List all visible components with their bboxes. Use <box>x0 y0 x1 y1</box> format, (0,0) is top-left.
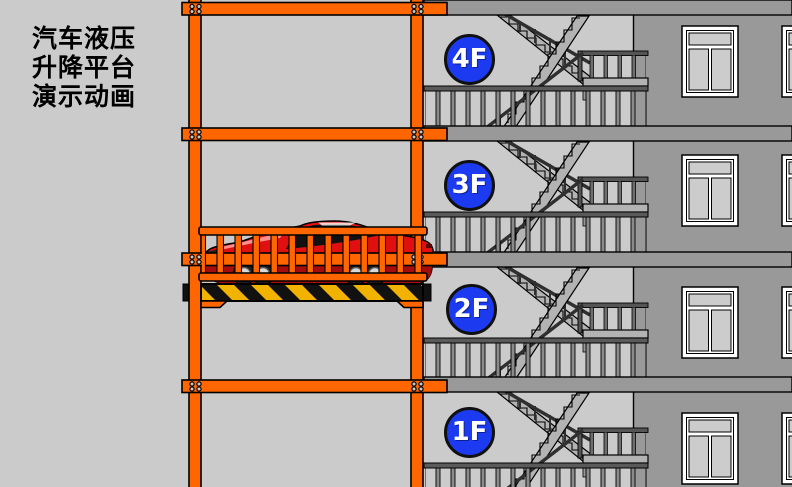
floor-badge-label: 3F <box>452 170 488 200</box>
platform-end-cap-right <box>423 284 431 301</box>
title-line-2: 升降平台 <box>32 53 136 82</box>
floor-badge-3f: 3F <box>444 160 495 211</box>
floor-badge-2f: 2F <box>446 284 497 335</box>
floor-slab <box>424 377 792 392</box>
hazard-stripe-panel <box>201 284 423 301</box>
platform-railing <box>199 227 427 281</box>
floor-badge-4f: 4F <box>444 34 495 85</box>
crossbeam-bottom <box>182 380 447 393</box>
crossbeam-2 <box>182 128 447 141</box>
platform-railing-bottom <box>199 273 427 281</box>
platform-railing-top <box>199 227 427 235</box>
platform-bracket-right <box>397 301 423 308</box>
floor-slab <box>424 0 792 15</box>
title-line-3: 演示动画 <box>32 82 136 111</box>
animation-stage: 汽车液压 升降平台 演示动画 4F 3F 2F 1F <box>0 0 792 487</box>
floor-badge-1f: 1F <box>444 407 495 458</box>
lift-column-left <box>189 0 201 487</box>
title-line-1: 汽车液压 <box>32 24 136 53</box>
floor-slab <box>424 252 792 267</box>
floor-badge-label: 1F <box>452 417 488 447</box>
floor-badge-label: 2F <box>454 294 490 324</box>
platform-railing-bars <box>202 233 425 275</box>
title-text: 汽车液压 升降平台 演示动画 <box>32 24 136 111</box>
platform-bracket-left <box>201 301 227 308</box>
car-taillight <box>426 244 432 248</box>
floor-badge-label: 4F <box>452 44 488 74</box>
crossbeam-top <box>182 3 447 16</box>
floor-slab <box>424 126 792 141</box>
